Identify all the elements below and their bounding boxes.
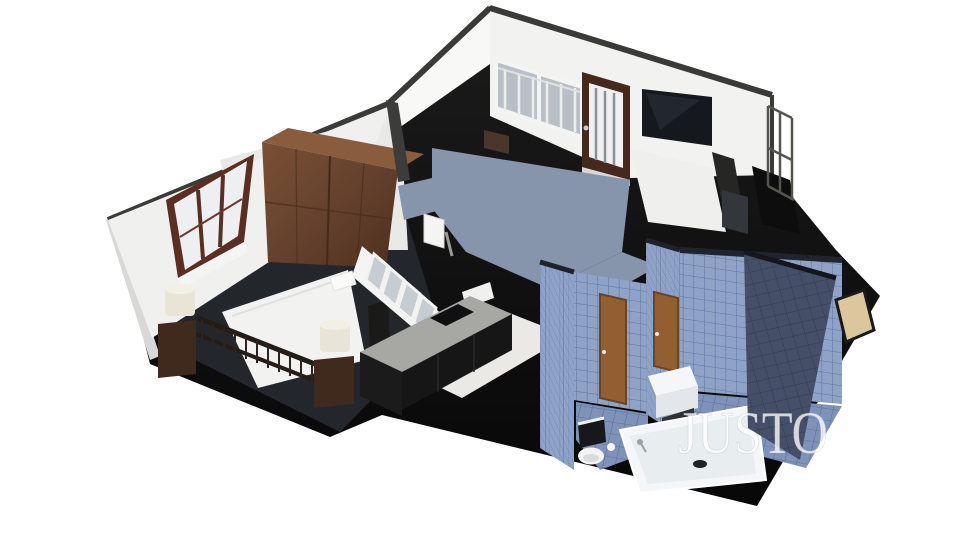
balcony-door [582, 72, 630, 186]
wc-door [600, 294, 626, 404]
floorplan-render-canvas: JUSTO [0, 0, 960, 540]
door-handle [584, 126, 589, 131]
armchair [722, 190, 748, 234]
bathroom-door [654, 292, 678, 372]
range-hood [424, 214, 444, 248]
wc-left-wall [540, 262, 574, 470]
apartment-3d-floorplan: JUSTO [0, 0, 960, 540]
wc-door-handle [602, 350, 606, 354]
toilet-paper-roll [607, 443, 615, 451]
toilet-seat [583, 454, 599, 462]
wall-tv [642, 89, 712, 146]
nightstand-right [314, 320, 354, 408]
bathroom-door-handle [655, 332, 659, 336]
watermark-text: JUSTO [678, 400, 828, 466]
